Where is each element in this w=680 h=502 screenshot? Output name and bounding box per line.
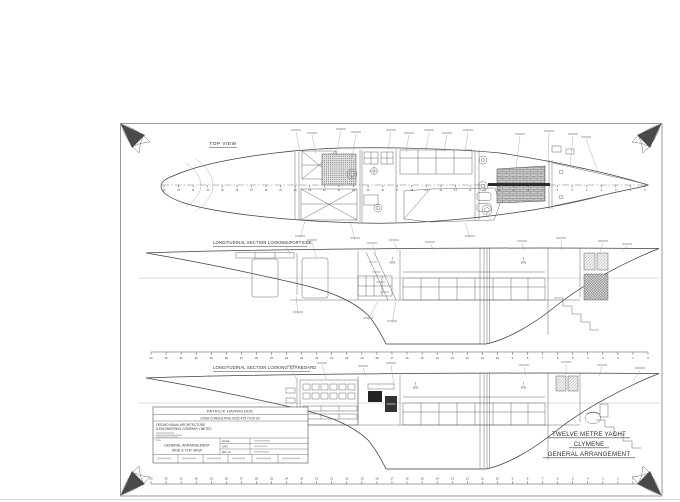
stamp: TWELVE METRE YACHT CLYMENE GENERAL ARRAN… [543,431,635,458]
station-label: 11 [483,189,486,192]
station-label: 20 [345,356,349,360]
portside-companionway [358,252,396,300]
station-label: 10 [496,477,500,481]
stamp-yacht-name: CLYMENE [574,441,605,448]
corner-mark-bottom-right [632,466,661,495]
station-label: 7 [542,477,544,481]
portside-callouts [281,237,632,323]
station-label: 6 [557,477,559,481]
lamp-icon [521,257,526,263]
station-label: 19 [360,356,364,360]
station-label: 14 [440,189,443,192]
station-label: 33 [163,189,166,192]
station-label: 21 [330,356,334,360]
mast-portside [487,249,490,345]
station-label: 4 [587,356,589,360]
station-label: 25 [270,356,274,360]
station-label: 33 [149,356,153,360]
station-label: 22 [315,356,319,360]
station-label: 29 [221,189,224,192]
station-label: 11 [481,356,484,360]
station-label: 27 [240,477,244,481]
station-label: 30 [206,189,209,192]
station-label: 16 [405,356,409,360]
station-label: 19 [360,477,364,481]
station-label: 28 [225,477,229,481]
station-label: 18 [375,356,379,360]
station-label: 20 [352,189,355,192]
station-label: 3 [601,189,603,192]
station-label: 32 [164,477,168,481]
station-label: 22 [315,477,319,481]
drawing-title-line1: GENERAL ARRANGEMENT [164,444,211,448]
station-label: 24 [285,477,289,481]
station-label: 27 [250,189,253,192]
station-label: 3 [602,477,604,481]
station-label: 5 [572,356,574,360]
station-label: 5 [571,189,573,192]
scanned-drawing-sheet: TOP VIEW [0,0,680,502]
station-label: 15 [420,477,424,481]
station-label: 18 [381,189,384,192]
station-label: 31 [180,477,184,481]
portside-hull-profile [146,248,659,344]
station-label: 25 [279,189,282,192]
station-label: 26 [255,477,259,481]
saloon-settee [400,150,472,174]
station-label: 19 [367,189,370,192]
corner-mark-top-right [632,124,661,153]
mid-station-ruler: 3332313029282726252423222120191817161514… [149,352,649,360]
starboard-title: LONGITUDINAL SECTION LOOKING STARBOARD [213,365,316,370]
station-label: 17 [390,477,394,481]
station-label: 27 [240,356,244,360]
drawing-title-line2: SIDE & TOP VIEW [172,449,203,453]
station-label: 32 [164,356,168,360]
station-label: 13 [451,356,455,360]
station-label: 9 [512,477,514,481]
hull-plan-outline [161,148,648,223]
portside-forward [554,253,608,330]
lamp-icon [413,382,418,388]
station-label: 23 [308,189,311,192]
station-label: 29 [210,356,214,360]
station-label: 4 [587,477,589,481]
field-label-date: DATE [222,446,228,449]
mast-step-bar [488,183,550,186]
field-label-scale: SCALE [222,440,230,443]
mast-starboard [487,374,490,470]
station-label: 10 [496,356,500,360]
forepeak-lines [552,146,646,206]
station-label: 33 [149,477,153,481]
portside-structure [290,248,580,344]
owner-name: PATRICK HARWOODE [207,409,254,414]
station-label: 1 [632,356,634,360]
stamp-yacht-type: TWELVE METRE YACHT [552,431,626,438]
galley-stove-block [322,154,356,185]
consulting-line: CASA CONSULTING 0032 475 70 00 02 [200,416,260,420]
starboard-settee [403,382,545,425]
field-label-drgno: DRG No [222,452,231,454]
station-label: 21 [338,189,341,192]
bottom-station-ruler: 3332313029282726252423222120191817161514… [149,477,649,485]
station-label: 5 [572,477,574,481]
starboard-callouts [287,361,645,384]
station-label: 8 [527,356,529,360]
portside-title: LONGITUDINAL SECTION LOOKING PORTSIDE [213,240,312,245]
station-label: 29 [210,477,214,481]
station-label: 15 [420,356,424,360]
portside-settee [390,257,545,300]
station-label: 13 [451,477,455,481]
station-label: 32 [177,189,180,192]
starboard-stove [368,384,397,412]
corner-mark-bottom-left [121,466,150,495]
station-label: 24 [285,356,289,360]
station-label: 8 [527,477,529,481]
station-label: 14 [436,356,440,360]
station-label: 17 [390,356,394,360]
station-label: 21 [330,477,334,481]
drawing-canvas: TOP VIEW [0,0,680,502]
station-label: 9 [512,356,514,360]
station-label: 26 [255,356,259,360]
station-label: 2 [617,356,619,360]
station-label: 23 [300,356,304,360]
station-label: 22 [323,189,326,192]
station-label: 16 [405,477,409,481]
station-label: 2 [617,477,619,481]
station-label: 28 [236,189,239,192]
station-label: 1 [632,477,634,481]
starboard-structure [290,373,580,469]
top-view: TOP VIEW [161,128,648,240]
station-label: 12 [466,356,470,360]
station-label: 13 [454,189,457,192]
mid-fixtures [364,152,393,212]
station-label: 18 [375,477,379,481]
station-label: 24 [294,189,297,192]
station-label: 7 [542,356,544,360]
title-block: PATRICK HARWOODE CASA CONSULTING 0032 47… [153,407,308,463]
station-label: 30 [195,477,199,481]
company-line2: & ENGINEERING COMPANY LIMITED [156,427,212,431]
lamp-icon [390,257,395,263]
station-label: 20 [345,477,349,481]
station-label: 3 [602,356,604,360]
station-label: 11 [481,477,484,481]
station-label: 12 [469,189,472,192]
station-label: 25 [270,477,274,481]
station-label: 30 [195,356,199,360]
station-label: 23 [300,477,304,481]
station-label: 31 [180,356,184,360]
portside-aft-cabin [236,253,328,299]
station-label: 6 [557,356,559,360]
station-label: 1 [630,189,632,192]
station-label: 0 [644,189,646,192]
lamp-icon [521,382,526,388]
station-label: 12 [466,477,470,481]
station-label: 2 [615,189,617,192]
station-label: 17 [396,189,399,192]
corner-mark-top-left [121,124,150,153]
station-label: 28 [225,356,229,360]
station-label: 0 [647,356,649,360]
station-label: 14 [436,477,440,481]
station-label: 31 [192,189,195,192]
portside-section: LONGITUDINAL SECTION LOOKING PORTSIDE [138,237,661,344]
stamp-drawing-type: GENERAL ARRANGEMENT [548,451,631,458]
title-label: TITLE [155,440,161,442]
station-label: 4 [586,189,588,192]
top-view-title: TOP VIEW [209,141,236,147]
station-label: 26 [265,189,268,192]
station-label: 6 [557,189,559,192]
steps-down [554,298,599,330]
